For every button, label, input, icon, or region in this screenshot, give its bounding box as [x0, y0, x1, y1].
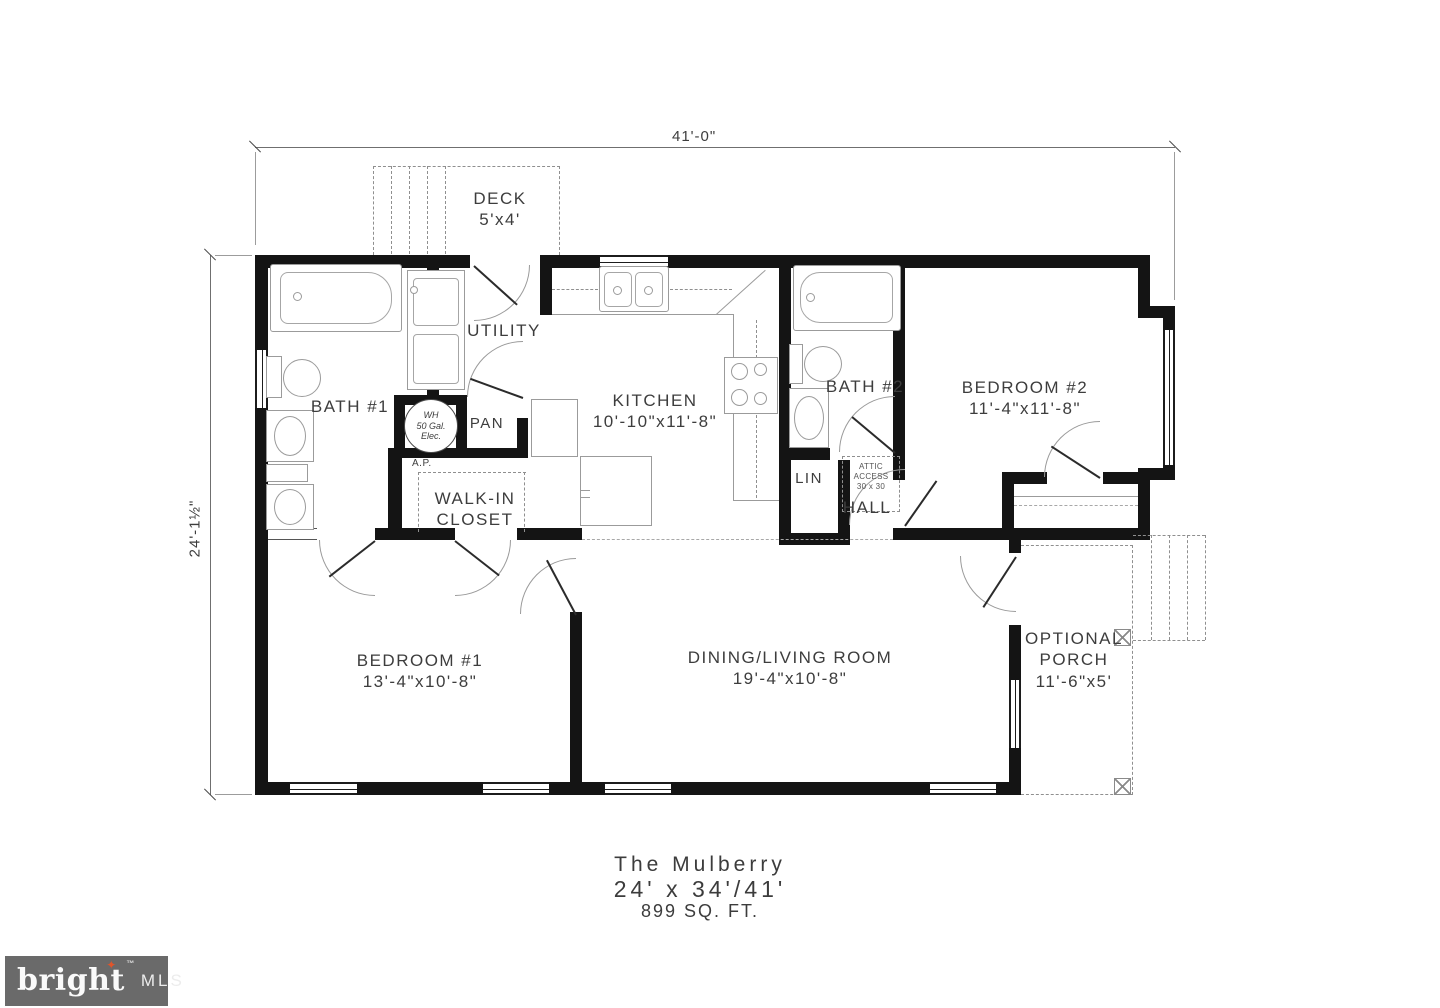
toilet-tank	[789, 344, 803, 384]
kitchen-size: 10'-10"x11'-8"	[570, 411, 740, 432]
porch-size: 11'-6"x5'	[1020, 671, 1128, 692]
bedroom2-size: 11'-4"x11'-8"	[935, 398, 1115, 419]
room-boundary-line	[582, 539, 893, 540]
window-pane-line	[600, 262, 668, 263]
logo-suffix-text: MLS	[141, 971, 185, 991]
attic-line2: ACCESS	[842, 472, 900, 482]
extension-line	[255, 152, 256, 245]
dimension-label-width: 41'-0"	[672, 128, 716, 145]
toilet-bowl	[283, 359, 321, 397]
deck-step-line	[391, 166, 392, 254]
room-label-linen: LIN	[784, 470, 834, 489]
room-label-utility: UTILITY	[454, 320, 554, 341]
water-heater: WH 50 Gal. Elec.	[404, 399, 458, 453]
porch-step-line	[1133, 640, 1205, 641]
laundry-drum	[274, 489, 306, 525]
counter-edge	[552, 314, 733, 315]
wall	[388, 448, 402, 540]
refrigerator	[580, 456, 652, 526]
attic-line1: ATTIC	[842, 462, 900, 472]
deck-size: 5'x4'	[450, 209, 550, 230]
burner	[731, 363, 748, 380]
room-label-bath2: BATH #2	[815, 376, 915, 397]
window	[290, 782, 357, 795]
window	[1163, 330, 1175, 465]
room-label-porch: OPTIONAL PORCH 11'-6"x5'	[1020, 628, 1128, 692]
wall	[570, 612, 582, 782]
living-name: DINING/LIVING ROOM	[665, 647, 915, 668]
dimension-label-depth: 24'-1½"	[186, 500, 203, 558]
extension-line	[1174, 152, 1175, 300]
refrigerator-handle	[580, 497, 590, 498]
extension-line	[215, 255, 252, 256]
bright-mls-logo: bright✦™ MLS	[5, 956, 168, 1006]
control-knob	[410, 286, 418, 294]
room-label-living: DINING/LIVING ROOM 19'-4"x10'-8"	[665, 647, 915, 690]
room-label-bedroom1: BEDROOM #1 13'-4"x10'-8"	[330, 650, 510, 693]
window-pane-line	[1169, 330, 1170, 465]
deck-name: DECK	[450, 188, 550, 209]
counter-edge	[733, 500, 779, 501]
deck-step-line	[427, 166, 428, 254]
washer-door	[413, 278, 459, 326]
star-icon: ✦	[106, 959, 117, 971]
refrigerator-handle	[580, 490, 590, 491]
kitchen-name: KITCHEN	[570, 390, 740, 411]
plan-title: The Mulberry	[520, 853, 880, 877]
room-label-bedroom2: BEDROOM #2 11'-4"x11'-8"	[935, 377, 1115, 420]
extension-line	[215, 794, 252, 795]
vanity-basin	[794, 396, 824, 440]
wall	[779, 448, 830, 460]
walk-in-line2: CLOSET	[415, 509, 535, 530]
water-heater-label2: 50 Gal.	[416, 421, 445, 431]
window-pane-line	[262, 350, 263, 408]
closet-shelf-line	[1014, 505, 1138, 506]
porch-step-line	[1169, 535, 1170, 640]
window	[483, 782, 549, 795]
floor-plan-canvas: 41'-0" 24'-1½" DECK 5'x4'	[0, 0, 1440, 1008]
burner	[754, 392, 767, 405]
dimension-line-left	[210, 255, 211, 795]
burner	[754, 363, 767, 376]
room-label-hall: HALL	[832, 497, 902, 518]
room-label-access-panel: A.P.	[412, 458, 448, 471]
door-arc	[1044, 421, 1100, 477]
sink-drain	[644, 286, 653, 295]
closet-shelf-line	[418, 472, 526, 473]
window-pane-line	[605, 789, 671, 790]
window	[930, 782, 996, 795]
room-label-deck: DECK 5'x4'	[450, 188, 550, 231]
closet-rod-line	[1014, 496, 1138, 497]
porch-post	[1114, 778, 1131, 795]
living-size: 19'-4"x10'-8"	[665, 668, 915, 689]
room-label-kitchen: KITCHEN 10'-10"x11'-8"	[570, 390, 740, 433]
dimension-line-top	[255, 147, 1175, 148]
deck-step-line	[409, 166, 410, 254]
toilet-tank	[266, 356, 282, 398]
upper-cabinet-line	[670, 289, 732, 290]
laundry-drum	[274, 416, 306, 456]
wall	[893, 528, 1150, 540]
bedroom2-name: BEDROOM #2	[935, 377, 1115, 398]
wall	[540, 255, 552, 315]
room-label-bath1: BATH #1	[300, 396, 400, 417]
room-label-walk-in-closet: WALK-IN CLOSET	[415, 488, 535, 531]
porch-step-line	[1187, 535, 1188, 640]
window-pane-line	[1015, 680, 1016, 748]
wall	[1002, 472, 1014, 540]
laundry-shelf	[266, 464, 308, 482]
water-heater-label3: Elec.	[421, 431, 441, 441]
upper-cabinet-line	[552, 289, 598, 290]
logo-brand-text: bright✦™	[17, 966, 125, 996]
sink-drain	[613, 286, 622, 295]
porch-step-line	[1205, 535, 1206, 640]
plan-area: 899 SQ. FT.	[520, 901, 880, 922]
bedroom1-name: BEDROOM #1	[330, 650, 510, 671]
porch-step-line	[1151, 535, 1152, 640]
porch-line2: PORCH	[1020, 649, 1128, 670]
door-arc	[960, 556, 1016, 612]
counter-corner-edge	[716, 270, 766, 315]
deck-step-line	[445, 166, 446, 254]
wall	[1103, 472, 1150, 484]
porch-line1: OPTIONAL	[1020, 628, 1128, 649]
walk-in-line1: WALK-IN	[415, 488, 535, 509]
attic-access-label: ATTIC ACCESS 30 x 30	[842, 462, 900, 492]
bedroom1-size: 13'-4"x10'-8"	[330, 671, 510, 692]
dryer-door	[413, 334, 459, 384]
window-pane-line	[483, 789, 549, 790]
room-label-pantry: PAN	[462, 415, 512, 434]
door-arc	[520, 558, 576, 614]
attic-line3: 30 x 30	[842, 482, 900, 492]
trademark-symbol: ™	[126, 960, 135, 968]
door-leaf	[904, 480, 937, 526]
wall	[394, 448, 528, 458]
plan-size: 24' x 34'/41'	[520, 876, 880, 903]
window-pane-line	[290, 789, 357, 790]
door-arc	[839, 396, 895, 452]
bathtub-drain	[806, 293, 815, 302]
window	[605, 782, 671, 795]
bathtub-drain	[293, 292, 302, 301]
window-pane-line	[930, 789, 996, 790]
water-heater-label1: WH	[424, 410, 439, 420]
